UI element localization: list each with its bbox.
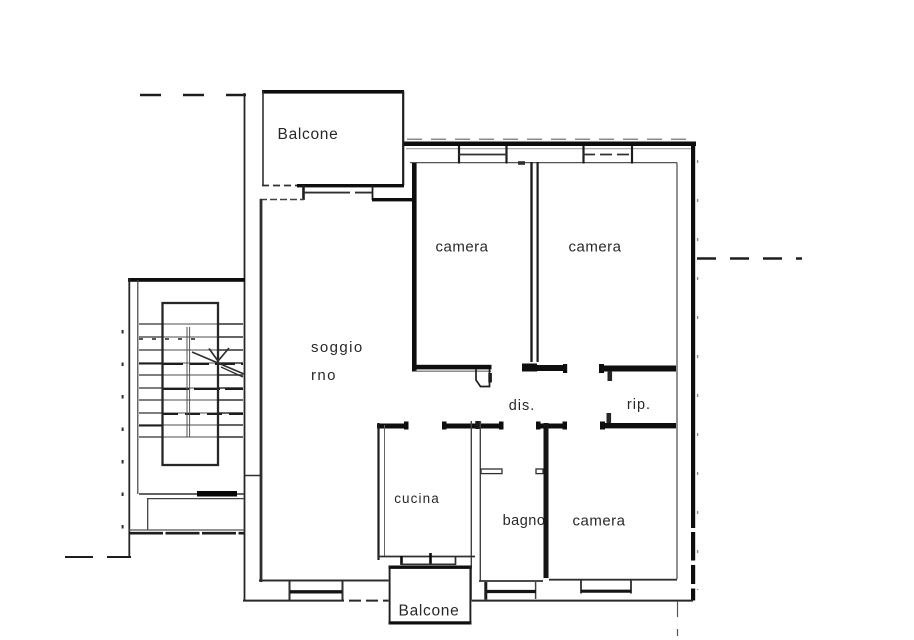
- svg-text:Balcone: Balcone: [278, 126, 339, 143]
- svg-text:cucina: cucina: [394, 491, 440, 506]
- svg-text:camera: camera: [568, 239, 621, 256]
- svg-text:camera: camera: [435, 239, 488, 256]
- svg-text:rip.: rip.: [627, 397, 651, 413]
- svg-text:bagno: bagno: [503, 513, 546, 529]
- svg-text:Balcone: Balcone: [399, 603, 460, 620]
- svg-text:soggio: soggio: [311, 339, 364, 356]
- svg-text:dis.: dis.: [509, 398, 536, 414]
- svg-text:rno: rno: [311, 367, 337, 384]
- svg-text:camera: camera: [572, 513, 625, 530]
